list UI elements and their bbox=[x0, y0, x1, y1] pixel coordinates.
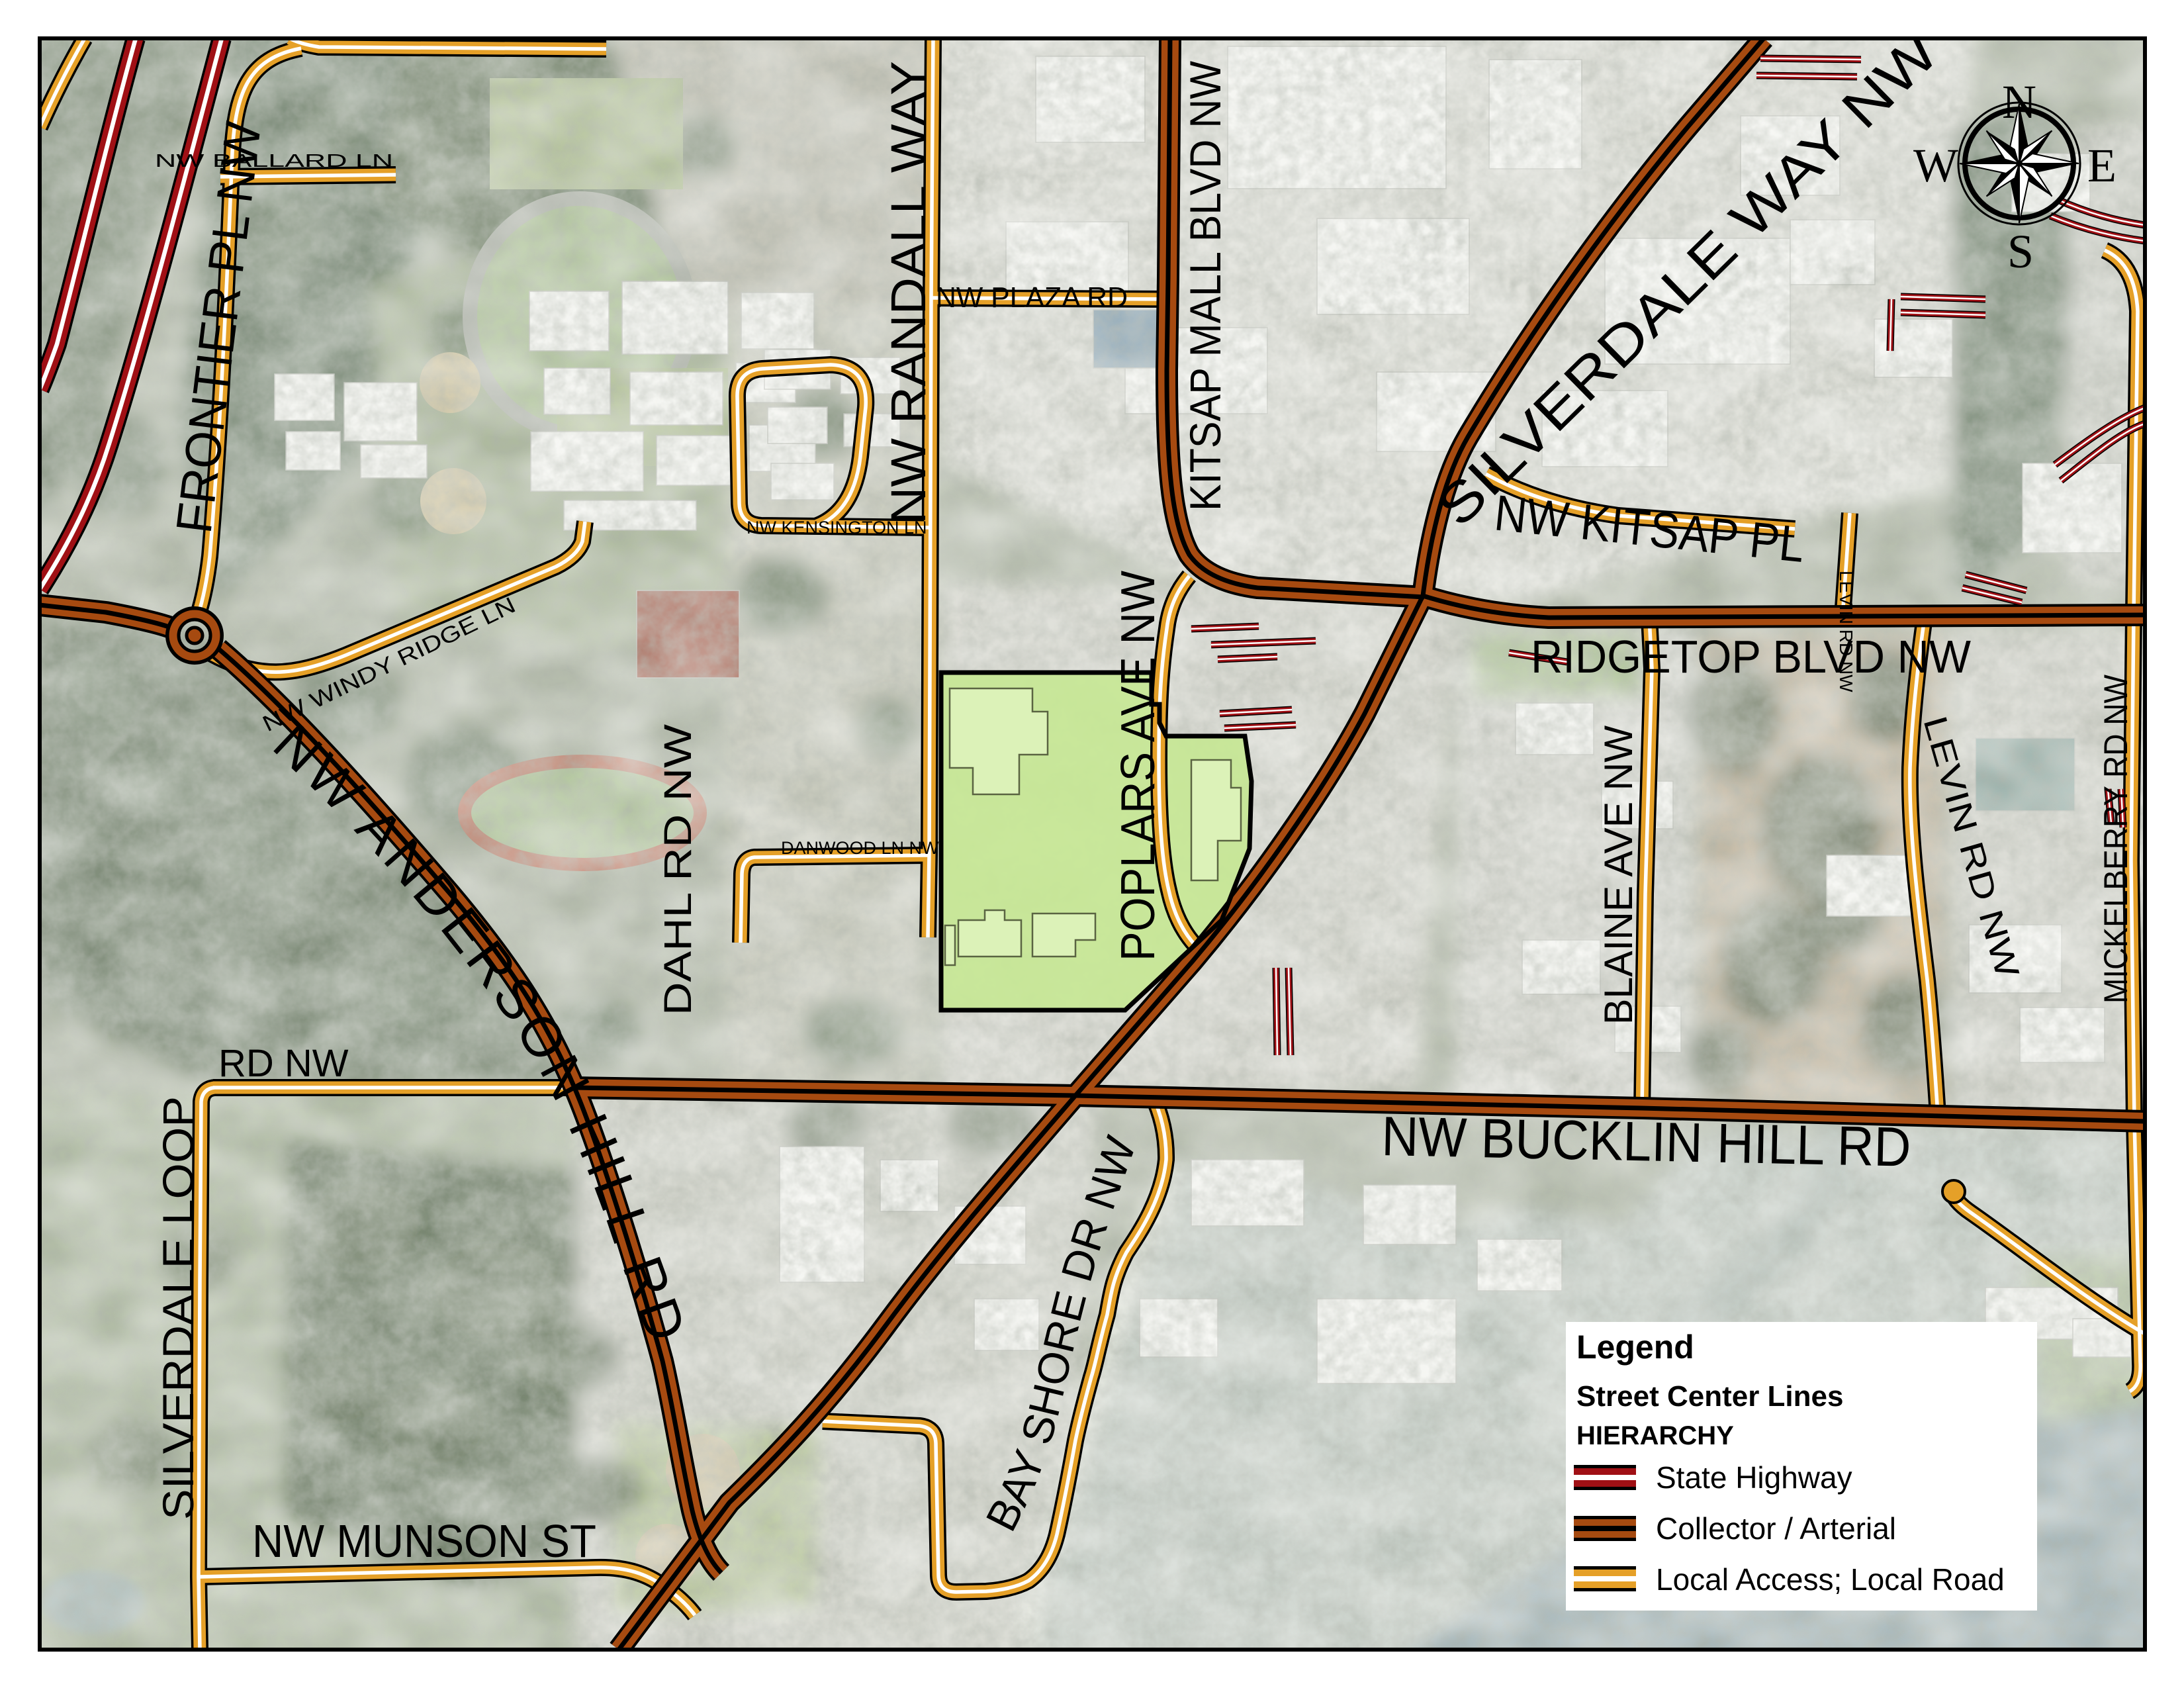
svg-text:S: S bbox=[2007, 225, 2034, 278]
svg-text:Local Access; Local Road: Local Access; Local Road bbox=[1656, 1562, 2005, 1597]
svg-text:HIERARCHY: HIERARCHY bbox=[1576, 1421, 1734, 1450]
svg-text:NW BALLARD LN: NW BALLARD LN bbox=[155, 150, 393, 171]
svg-text:Legend: Legend bbox=[1576, 1329, 1694, 1366]
svg-text:KITSAP MALL BLVD NW: KITSAP MALL BLVD NW bbox=[1181, 60, 1230, 511]
svg-text:LEVIN RD NW: LEVIN RD NW bbox=[1836, 571, 1856, 692]
svg-text:Collector / Arterial: Collector / Arterial bbox=[1656, 1511, 1896, 1546]
svg-text:NW RANDALL WAY: NW RANDALL WAY bbox=[881, 61, 936, 524]
svg-text:RD NW: RD NW bbox=[218, 1042, 349, 1085]
svg-text:POPLARS AVE NW: POPLARS AVE NW bbox=[1112, 571, 1165, 961]
svg-text:NW KENSINGTON LN: NW KENSINGTON LN bbox=[747, 518, 927, 538]
svg-text:DANWOOD LN NW: DANWOOD LN NW bbox=[781, 838, 939, 858]
svg-text:MICKELBERRY RD NW: MICKELBERRY RD NW bbox=[2097, 674, 2134, 1004]
svg-text:NW PLAZA RD: NW PLAZA RD bbox=[936, 281, 1128, 314]
svg-text:Street Center Lines: Street Center Lines bbox=[1576, 1380, 1843, 1413]
svg-text:W: W bbox=[1913, 139, 1958, 192]
svg-text:RIDGETOP BLVD NW: RIDGETOP BLVD NW bbox=[1531, 631, 1971, 682]
svg-text:N: N bbox=[2002, 75, 2036, 128]
svg-text:E: E bbox=[2087, 139, 2116, 192]
svg-text:DAHL RD NW: DAHL RD NW bbox=[657, 724, 700, 1015]
svg-text:NW MUNSON ST: NW MUNSON ST bbox=[252, 1515, 596, 1567]
svg-text:BLAINE AVE NW: BLAINE AVE NW bbox=[1596, 726, 1641, 1025]
svg-text:NW BUCKLIN HILL RD: NW BUCKLIN HILL RD bbox=[1381, 1105, 1912, 1178]
svg-text:State Highway: State Highway bbox=[1656, 1460, 1852, 1495]
svg-text:SILVERDALE LOOP: SILVERDALE LOOP bbox=[154, 1096, 203, 1520]
